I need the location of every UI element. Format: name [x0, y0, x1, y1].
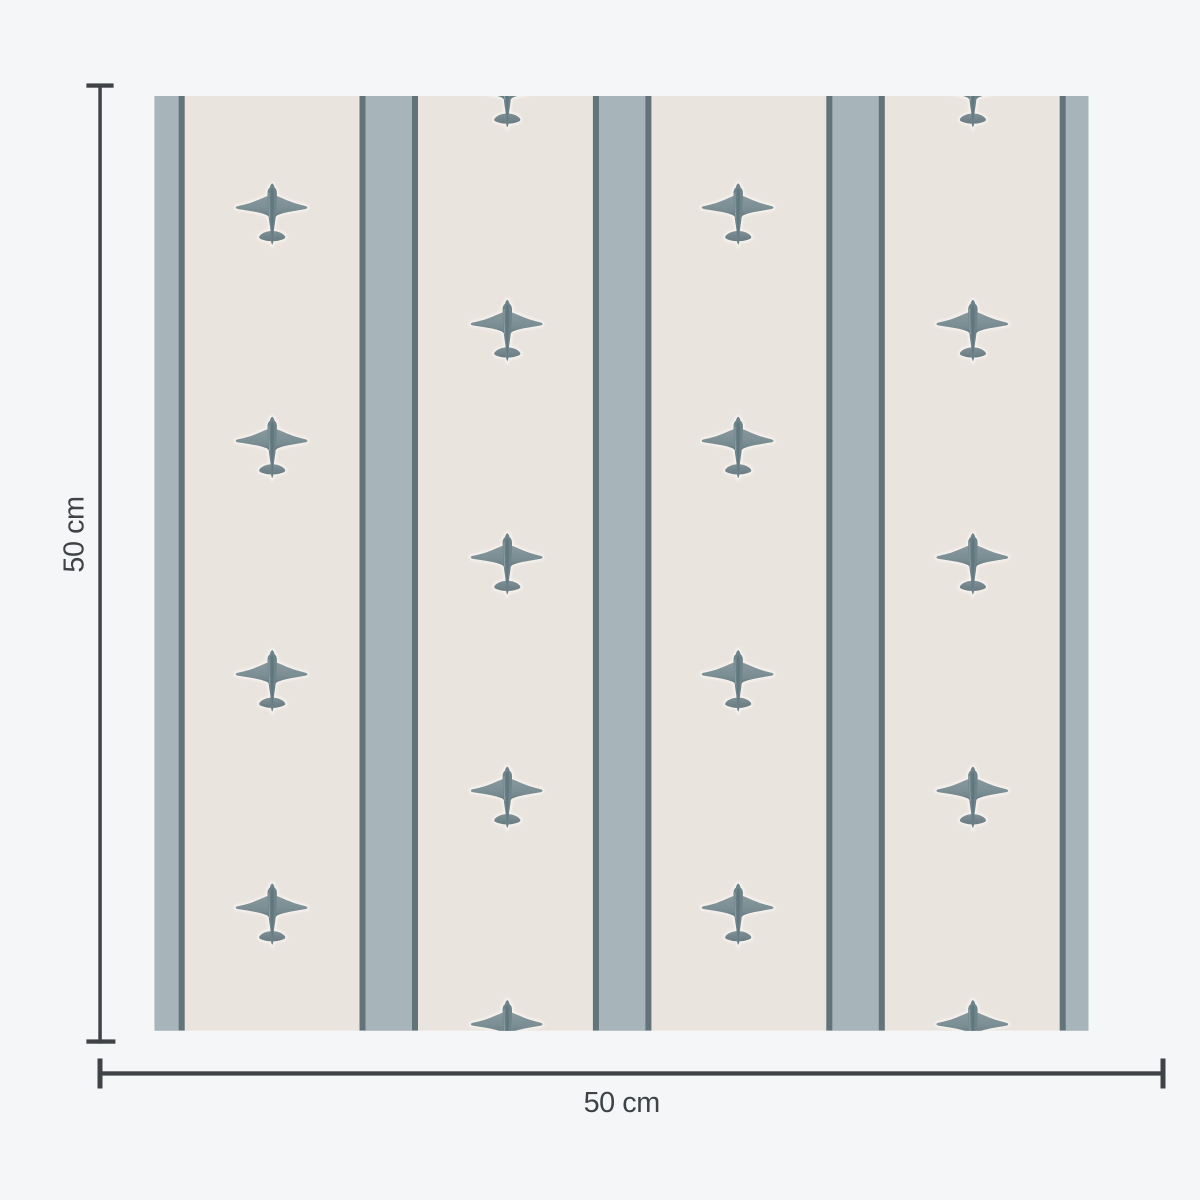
- svg-text:50 cm: 50 cm: [59, 496, 91, 572]
- svg-text:50 cm: 50 cm: [584, 1087, 660, 1119]
